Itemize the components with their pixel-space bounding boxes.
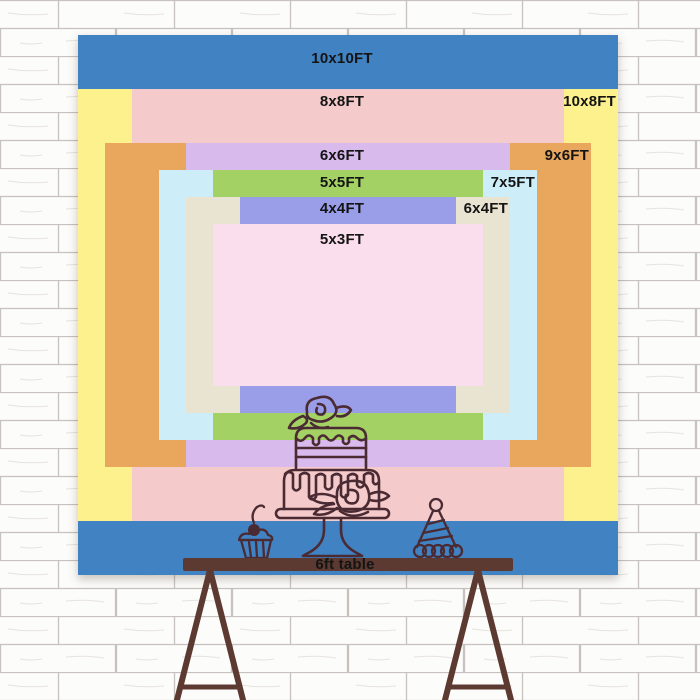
size-label-7x5ft: 7x5FT bbox=[491, 174, 535, 192]
size-label-9x6ft: 9x6FT bbox=[545, 147, 589, 165]
layer-5x3ft: 5x3FT bbox=[213, 224, 483, 386]
size-label-8x8ft: 8x8FT bbox=[132, 93, 564, 111]
size-label-10x8ft: 10x8FT bbox=[563, 93, 616, 111]
backdrop-size-chart: 10x10FT 10x8FT 8x8FT 9x6FT 6x6FT 7x5FT 5… bbox=[78, 35, 618, 575]
table-top: 6ft table bbox=[183, 558, 513, 571]
size-label-4x4ft: 4x4FT bbox=[240, 200, 456, 218]
size-label-10x10ft: 10x10FT bbox=[78, 50, 618, 68]
size-label-5x3ft: 5x3FT bbox=[213, 231, 483, 249]
size-label-5x5ft: 5x5FT bbox=[213, 174, 483, 192]
size-label-6x4ft: 6x4FT bbox=[464, 200, 508, 218]
size-label-6x6ft: 6x6FT bbox=[186, 147, 510, 165]
table-label: 6ft table bbox=[315, 558, 380, 571]
